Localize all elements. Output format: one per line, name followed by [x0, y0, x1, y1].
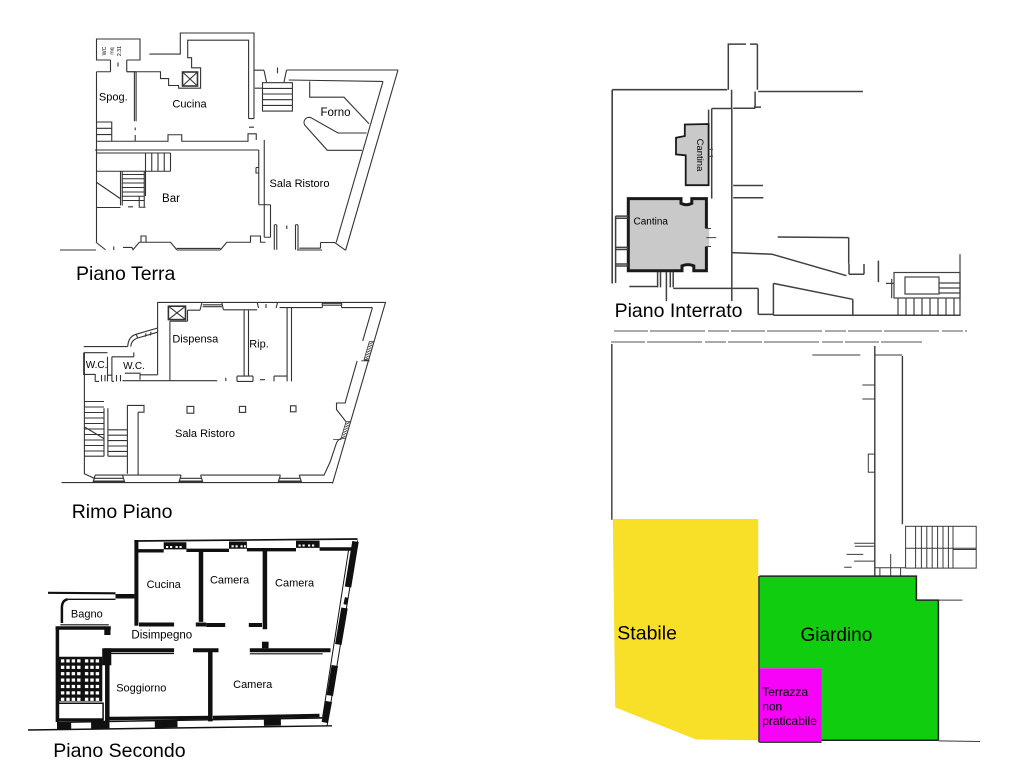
svg-text:Rimo Piano: Rimo Piano [72, 501, 173, 523]
svg-text:Giardino: Giardino [801, 625, 873, 646]
svg-text:Dispensa: Dispensa [172, 334, 219, 346]
svg-text:praticabile: praticabile [762, 714, 817, 728]
svg-text:Forno: Forno [320, 107, 350, 119]
svg-text:Disimpegno: Disimpegno [131, 630, 192, 642]
svg-text:Terrazza: Terrazza [762, 685, 808, 699]
svg-text:Bar: Bar [162, 193, 180, 205]
svg-text:Sala Ristoro: Sala Ristoro [175, 428, 235, 440]
svg-text:Piano Interrato: Piano Interrato [615, 300, 743, 322]
svg-text:Soggiorno: Soggiorno [116, 683, 166, 695]
svg-text:Camera: Camera [210, 575, 250, 587]
svg-text:Cantina: Cantina [634, 217, 669, 228]
svg-text:Rip.: Rip. [249, 339, 269, 351]
svg-text:Bagno: Bagno [71, 609, 103, 621]
svg-text:Piano Secondo: Piano Secondo [53, 740, 185, 762]
svg-text:Camera: Camera [275, 578, 315, 590]
svg-text:2.31: 2.31 [117, 46, 123, 56]
svg-text:Sala Ristoro: Sala Ristoro [270, 178, 330, 190]
svg-text:W.C.: W.C. [123, 361, 145, 372]
svg-text:mq: mq [110, 47, 116, 54]
svg-text:Stabile: Stabile [617, 623, 677, 645]
svg-text:Cucina: Cucina [147, 579, 182, 591]
svg-text:non: non [762, 700, 782, 714]
svg-text:Cantina: Cantina [694, 139, 705, 172]
svg-text:Camera: Camera [233, 679, 273, 691]
svg-text:Spog.: Spog. [99, 92, 128, 104]
svg-text:WC: WC [102, 46, 108, 55]
svg-text:Piano Terra: Piano Terra [76, 263, 176, 285]
svg-text:W.C.: W.C. [86, 360, 108, 371]
svg-text:Cucina: Cucina [172, 99, 207, 111]
